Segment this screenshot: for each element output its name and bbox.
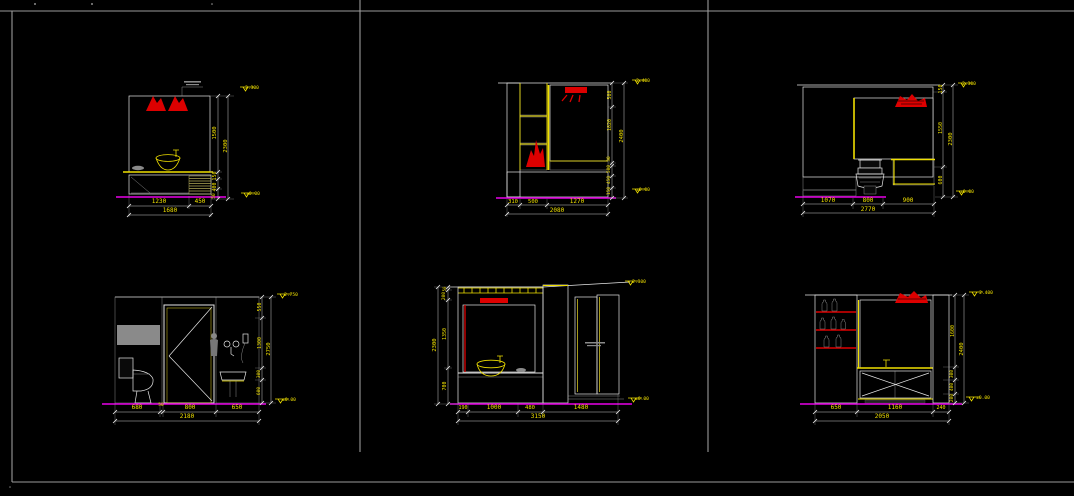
vanity-light-icon <box>146 96 166 111</box>
dim-label: 1550 <box>938 122 944 134</box>
niche-band <box>117 325 160 345</box>
dim-label: 150 <box>212 171 218 180</box>
brick-column <box>507 83 520 197</box>
dim-label: 150 <box>938 84 944 93</box>
shelf-column <box>815 295 857 403</box>
level-label: ±0.00 <box>636 188 650 194</box>
panel-top-left <box>116 81 255 217</box>
ceiling-line <box>448 282 630 287</box>
dim-label: 50 <box>442 287 448 292</box>
dim-label: 150 <box>607 187 613 195</box>
drawing-canvas <box>0 0 1074 496</box>
dim-label: 450 <box>195 199 206 205</box>
mosaic-base <box>458 377 543 403</box>
light-icon <box>480 298 508 303</box>
dim-label: 240 <box>936 405 945 411</box>
vanity-cabinet <box>858 371 933 403</box>
dim-label: 2050 <box>875 414 889 420</box>
vanity-wall <box>458 287 543 403</box>
drawer-vent <box>189 176 211 194</box>
dim-label: 2770 <box>861 207 875 213</box>
dim-label: 1000 <box>487 405 501 411</box>
tile-strip-top <box>458 288 543 293</box>
level-label: 2.300 <box>632 280 646 286</box>
level-label: ±0.00 <box>960 190 974 196</box>
mirror <box>550 85 608 161</box>
dim-label: 1600 <box>950 325 956 337</box>
level-label: ±0.00 <box>282 398 296 404</box>
dim-label: 2080 <box>550 208 564 214</box>
tile-strip <box>550 161 608 170</box>
dim-label: 400 <box>212 182 218 191</box>
side-cabinet <box>891 159 935 185</box>
dim-label: 1350 <box>442 328 448 340</box>
dim-label: 30 <box>607 156 613 161</box>
panel-bottom-middle <box>434 281 642 425</box>
counter-accessory <box>516 368 526 372</box>
dim-label: 500 <box>528 199 538 205</box>
shower-glass <box>568 295 624 399</box>
dim-label: 450 <box>607 176 613 184</box>
dim-label: 500 <box>607 90 613 99</box>
dim-label: 2300 <box>432 338 438 351</box>
dim-label: 2750 <box>266 342 272 355</box>
vessel-sink <box>156 150 180 170</box>
mirror <box>463 305 535 372</box>
door <box>164 305 214 403</box>
dim-label: 680 <box>132 405 143 411</box>
level-label: 2.400 <box>636 79 650 85</box>
dim-label: 50 <box>158 403 163 409</box>
level-label: 2.750 <box>284 293 298 299</box>
level-label: ±0.00 <box>246 192 260 198</box>
dim-label: 700 <box>442 381 448 390</box>
dim-label: 2400 <box>959 342 965 355</box>
tiled-wall-left <box>115 297 162 403</box>
leader-line <box>182 87 203 96</box>
dim-label: 50 <box>212 193 218 198</box>
dim-label: 600 <box>938 175 944 184</box>
dim-label: 1230 <box>152 199 166 205</box>
level-label: 2.300 <box>962 82 976 88</box>
toilet-side <box>119 358 153 403</box>
dim-label: 550 <box>257 302 263 311</box>
dim-label: 310 <box>508 199 518 205</box>
counter-accessory <box>132 166 144 170</box>
dim-label: 400 <box>950 383 956 391</box>
bottles <box>820 299 845 347</box>
dim-label: 2300 <box>948 132 954 145</box>
dim-label: 200 <box>950 394 956 402</box>
light-icon <box>895 291 928 303</box>
dim-label: 2400 <box>619 129 625 142</box>
tiled-column-right <box>933 295 949 403</box>
panel-bottom-left <box>102 294 291 425</box>
dim-label: 800 <box>863 198 874 204</box>
cad-sheet: 1230450168015001504005023002.300±0.00310… <box>0 0 1074 496</box>
dim-label: 1820 <box>607 119 613 131</box>
dim-label: 650 <box>831 405 842 411</box>
dim-label: 500 <box>607 165 613 173</box>
dim-label: 2300 <box>223 139 229 152</box>
shower-wall <box>216 297 259 403</box>
level-label: ±0.00 <box>635 397 649 403</box>
dim-label: 3150 <box>531 414 545 420</box>
light-icon <box>895 94 927 107</box>
level-label: ±0.00 <box>976 396 990 402</box>
dim-label: 190 <box>458 405 467 411</box>
level-label: 2.400 <box>979 291 993 297</box>
bathtub-platform <box>507 172 608 197</box>
mosaic-band <box>803 177 856 196</box>
dim-label: 900 <box>903 198 914 204</box>
dim-label: 1070 <box>821 198 835 204</box>
mirror-bg <box>854 98 933 159</box>
glass-label-smudge <box>585 342 605 344</box>
dim-label: 480 <box>525 405 535 411</box>
level-label: 2.300 <box>245 86 259 92</box>
dim-label: 300 <box>950 370 956 378</box>
dim-label: 650 <box>232 405 243 411</box>
dimensions-right <box>933 83 958 199</box>
light-icon <box>562 87 587 102</box>
dimensions-right <box>943 293 969 405</box>
shower-fixtures <box>210 333 248 397</box>
dim-label: 2180 <box>180 414 194 420</box>
note-text-smudge <box>184 81 201 83</box>
dim-label: 1680 <box>163 208 177 214</box>
panel-top-middle <box>496 80 646 217</box>
mirror <box>129 96 210 172</box>
faucet <box>883 360 890 367</box>
dim-label: 1270 <box>570 199 584 205</box>
dim-label: 1480 <box>574 405 588 411</box>
dim-label: 1160 <box>888 405 902 411</box>
dim-label: 1500 <box>212 126 218 139</box>
dim-label: 800 <box>185 405 196 411</box>
dimensions-bottom <box>456 394 620 425</box>
dim-label: 300 <box>257 370 263 378</box>
dim-label: 600 <box>257 387 263 395</box>
dim-label: 1300 <box>257 337 263 349</box>
vanity-light-icon <box>168 96 188 111</box>
dim-label: 200 <box>442 292 448 300</box>
panel-divider <box>360 0 708 452</box>
mirror <box>860 300 931 368</box>
tiled-column <box>543 285 568 403</box>
